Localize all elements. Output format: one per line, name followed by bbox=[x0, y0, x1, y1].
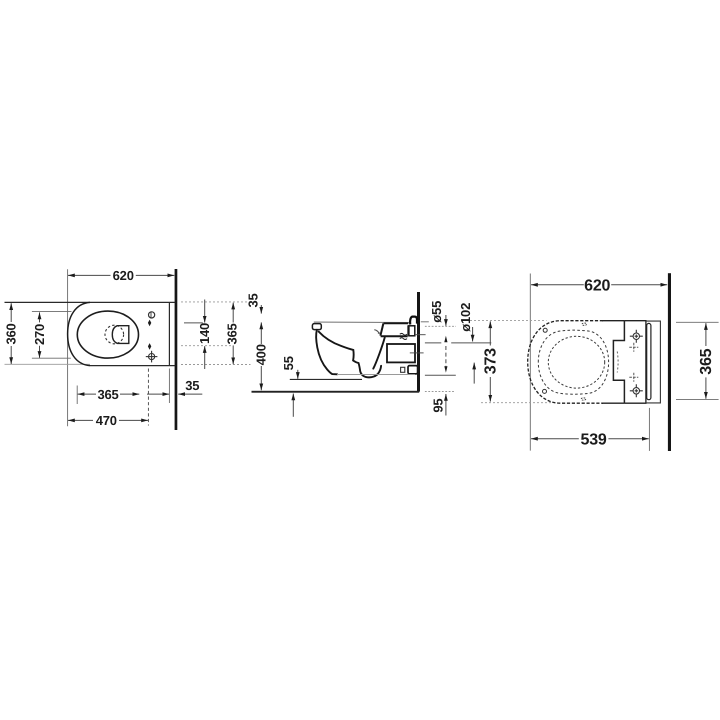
svg-text:400: 400 bbox=[253, 344, 268, 365]
svg-text:ø55: ø55 bbox=[429, 301, 444, 323]
svg-text:95: 95 bbox=[431, 399, 446, 413]
svg-text:ø102: ø102 bbox=[458, 303, 473, 332]
svg-text:620: 620 bbox=[113, 268, 134, 283]
svg-text:470: 470 bbox=[96, 413, 117, 428]
svg-text:365: 365 bbox=[97, 387, 118, 402]
svg-text:270: 270 bbox=[32, 324, 47, 345]
svg-text:360: 360 bbox=[4, 323, 19, 344]
svg-text:620: 620 bbox=[584, 278, 610, 295]
svg-text:365: 365 bbox=[224, 323, 239, 344]
svg-text:539: 539 bbox=[581, 432, 607, 449]
svg-text:365: 365 bbox=[698, 348, 715, 374]
svg-text:373: 373 bbox=[482, 348, 499, 374]
svg-text:55: 55 bbox=[281, 356, 296, 370]
svg-text:35: 35 bbox=[246, 293, 261, 307]
svg-text:35: 35 bbox=[185, 378, 199, 393]
svg-text:140: 140 bbox=[197, 323, 212, 344]
